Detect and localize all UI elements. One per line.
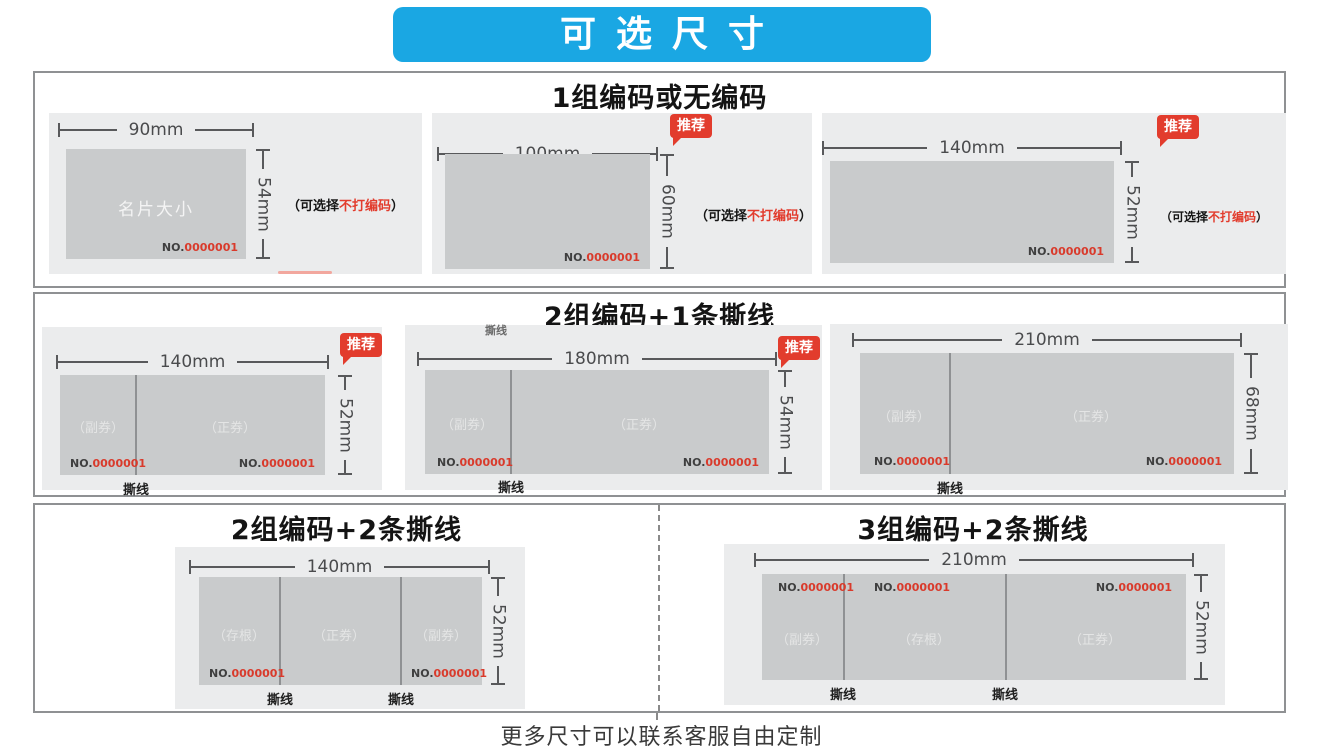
height-dimension-68mm: 68mm xyxy=(1243,353,1259,474)
serial-code: NO.0000001 xyxy=(162,241,238,254)
note-text: （可选择 xyxy=(287,199,339,214)
dim-tick xyxy=(1194,678,1208,680)
segment-label-main: （正券） xyxy=(1065,406,1117,425)
serial-code-prefix: NO. xyxy=(162,241,185,254)
tear-line-label: 撕线 xyxy=(123,479,149,498)
dim-tick xyxy=(1120,141,1122,155)
note-highlight: 不打编码 xyxy=(339,199,391,214)
serial-code-prefix: NO. xyxy=(437,456,460,469)
ticket-preview-210x52: NO.0000001 NO.0000001 NO.0000001 （副券） （存… xyxy=(762,574,1186,680)
size-card-90x54: 90mm 名片大小 NO.0000001 54mm （可选择不打编码） xyxy=(49,113,422,274)
serial-code-number: 0000001 xyxy=(460,456,514,469)
section-two-and-three-codes: 2组编码+2条撕线 140mm （存根） （正券） （副券） NO.000000… xyxy=(33,503,1286,713)
segment-label-stub: （副券） xyxy=(72,417,124,436)
dim-line xyxy=(262,151,264,169)
height-dimension-label: 60mm xyxy=(659,176,676,247)
tear-line-label: 撕线 xyxy=(937,478,963,497)
recommended-badge: 推荐 xyxy=(670,114,712,138)
height-dimension-label: 52mm xyxy=(1193,592,1210,663)
width-dimension-label: 210mm xyxy=(929,552,1019,569)
serial-code-prefix: NO. xyxy=(1028,245,1051,258)
no-code-option-note: （可选择不打编码） xyxy=(695,205,812,224)
height-dimension-52mm: 52mm xyxy=(337,375,353,475)
size-options-infographic: 可选尺寸 1组编码或无编码 90mm 名片大小 NO.0000001 54mm … xyxy=(0,0,1323,748)
tear-line-label: 撕线 xyxy=(498,477,524,496)
serial-code-prefix: NO. xyxy=(874,581,897,594)
width-dimension-140mm: 140mm xyxy=(822,140,1122,156)
width-dimension-90mm: 90mm xyxy=(58,122,254,138)
dim-line xyxy=(1200,576,1202,592)
serial-code-number: 0000001 xyxy=(896,581,950,594)
dim-tick xyxy=(1125,261,1139,263)
dim-line xyxy=(384,566,488,568)
serial-code-prefix: NO. xyxy=(1146,455,1169,468)
serial-code-prefix: NO. xyxy=(778,581,801,594)
segment-label-counterfoil: （存根） xyxy=(213,625,265,644)
serial-code-number: 0000001 xyxy=(184,241,238,254)
dim-line xyxy=(60,129,117,131)
serial-code-number: 0000001 xyxy=(1118,581,1172,594)
size-card-210x68-2seg: 210mm （副券） （正券） NO.0000001 NO.0000001 68… xyxy=(830,324,1288,490)
serial-code-number: 0000001 xyxy=(1168,455,1222,468)
dim-line xyxy=(784,372,786,387)
dim-tick xyxy=(327,355,329,369)
recommended-badge-label: 推荐 xyxy=(785,340,813,356)
segment-label-stub: （副券） xyxy=(878,406,930,425)
dim-line xyxy=(497,579,499,596)
dim-line xyxy=(237,361,327,363)
serial-code-number: 0000001 xyxy=(232,667,286,680)
serial-code-number: 0000001 xyxy=(705,456,759,469)
dim-line xyxy=(1250,449,1252,472)
height-dimension-54mm: 54mm xyxy=(777,370,793,474)
note-text: ） xyxy=(799,209,812,224)
section-one-code-header: 1组编码或无编码 xyxy=(35,76,1284,115)
dim-line xyxy=(1200,662,1202,678)
width-dimension-label: 90mm xyxy=(117,122,196,139)
width-dimension-label: 140mm xyxy=(295,559,385,576)
dim-line xyxy=(1019,559,1192,561)
section-left-header: 2组编码+2条撕线 xyxy=(35,508,658,547)
dim-tick xyxy=(1244,472,1258,474)
serial-code-prefix: NO. xyxy=(1096,581,1119,594)
note-highlight: 不打编码 xyxy=(1208,210,1256,224)
note-highlight: 不打编码 xyxy=(747,209,799,224)
serial-code-number: 0000001 xyxy=(434,667,488,680)
ticket-preview-140x52: （副券） （正券） NO.0000001 NO.0000001 xyxy=(60,375,325,475)
dim-tick xyxy=(1240,333,1242,347)
serial-code: NO.0000001 xyxy=(411,667,487,680)
serial-code: NO.0000001 xyxy=(564,251,640,264)
serial-code-number: 0000001 xyxy=(1050,245,1104,258)
serial-code-prefix: NO. xyxy=(209,667,232,680)
custom-size-caption: 更多尺寸可以联系客服自由定制 xyxy=(0,719,1323,748)
dim-tick xyxy=(488,560,490,574)
serial-code-prefix: NO. xyxy=(411,667,434,680)
height-dimension-label: 54mm xyxy=(777,387,794,458)
dim-tick xyxy=(656,147,658,161)
section-one-code: 1组编码或无编码 90mm 名片大小 NO.0000001 54mm （可选择不… xyxy=(33,71,1286,288)
dim-line xyxy=(344,377,346,390)
serial-code-number: 0000001 xyxy=(93,457,147,470)
width-dimension-140mm: 140mm xyxy=(189,559,490,575)
note-text: （可选择 xyxy=(695,209,747,224)
serial-code-prefix: NO. xyxy=(683,456,706,469)
tear-line-label: 撕线 xyxy=(830,684,856,703)
dim-tick xyxy=(338,473,352,475)
segment-label-main: （正券） xyxy=(613,414,665,433)
segment-label-main: （正券） xyxy=(313,625,365,644)
height-dimension-60mm: 60mm xyxy=(659,154,675,269)
serial-code: NO.0000001 xyxy=(1096,581,1172,594)
dim-line xyxy=(58,361,148,363)
dim-line xyxy=(642,358,775,360)
size-card-210x52-3seg: 210mm NO.0000001 NO.0000001 NO.0000001 （… xyxy=(724,544,1225,705)
serial-code: NO.0000001 xyxy=(437,456,513,469)
note-text: ） xyxy=(1256,210,1268,224)
dim-tick xyxy=(491,683,505,685)
serial-code-prefix: NO. xyxy=(70,457,93,470)
ticket-preview-180x54: （副券） （正券） NO.0000001 NO.0000001 xyxy=(425,370,769,474)
segment-label-stub: （副券） xyxy=(776,629,828,648)
no-code-option-note: （可选择不打编码） xyxy=(287,195,404,214)
serial-code: NO.0000001 xyxy=(778,581,854,594)
tear-line-label: 撕线 xyxy=(388,689,414,708)
recommended-badge: 推荐 xyxy=(1157,115,1199,139)
recommended-badge-label: 推荐 xyxy=(347,337,375,353)
serial-code: NO.0000001 xyxy=(1146,455,1222,468)
dim-line xyxy=(1131,163,1133,177)
dim-tick xyxy=(775,352,777,366)
recommended-badge: 推荐 xyxy=(778,336,820,360)
title-banner: 可选尺寸 xyxy=(393,7,931,62)
segment-label-stub: （副券） xyxy=(441,414,493,433)
serial-code-number: 0000001 xyxy=(897,455,951,468)
dim-tick xyxy=(1192,553,1194,567)
height-dimension-52mm: 52mm xyxy=(1124,161,1140,263)
tear-line-label: 撕线 xyxy=(992,684,1018,703)
page-title: 可选尺寸 xyxy=(560,17,784,53)
dim-line xyxy=(344,460,346,473)
recommended-badge-label: 推荐 xyxy=(677,118,705,134)
dim-line xyxy=(1017,147,1120,149)
dim-tick xyxy=(256,257,270,259)
serial-code-number: 0000001 xyxy=(586,251,640,264)
dim-line xyxy=(1131,247,1133,261)
dim-tick xyxy=(660,267,674,269)
serial-code-prefix: NO. xyxy=(564,251,587,264)
size-card-140x52-3seg: 140mm （存根） （正券） （副券） NO.0000001 NO.00000… xyxy=(175,547,525,709)
ticket-preview-100x60: NO.0000001 xyxy=(445,154,650,269)
width-dimension-label: 140mm xyxy=(148,354,238,371)
section-two-codes-one-tear: 2组编码+1条撕线 推荐 140mm （副券） （正券） NO.0000001 … xyxy=(33,292,1286,497)
serial-code-prefix: NO. xyxy=(239,457,262,470)
serial-code: NO.0000001 xyxy=(683,456,759,469)
dim-tick xyxy=(252,123,254,137)
dim-tick xyxy=(778,472,792,474)
serial-code: NO.0000001 xyxy=(874,581,950,594)
width-dimension-140mm: 140mm xyxy=(56,354,329,370)
no-code-option-note: （可选择不打编码） xyxy=(1160,208,1268,225)
width-dimension-210mm: 210mm xyxy=(754,552,1194,568)
ticket-preview-140x52: （存根） （正券） （副券） NO.0000001 NO.0000001 xyxy=(199,577,482,685)
ticket-preview-210x68: （副券） （正券） NO.0000001 NO.0000001 xyxy=(860,353,1234,474)
segment-label-main: （正券） xyxy=(1069,629,1121,648)
dim-line xyxy=(191,566,295,568)
size-card-180x54-2seg: 撕线 推荐 180mm （副券） （正券） NO.0000001 NO.0000… xyxy=(405,325,822,490)
height-dimension-label: 68mm xyxy=(1243,378,1260,449)
segment-label-stub: （副券） xyxy=(415,625,467,644)
section-right-header: 3组编码+2条撕线 xyxy=(658,508,1288,547)
height-dimension-label: 52mm xyxy=(490,596,507,667)
dim-line xyxy=(666,156,668,176)
serial-code-number: 0000001 xyxy=(801,581,855,594)
dim-line xyxy=(854,339,1002,341)
recommended-badge: 推荐 xyxy=(340,333,382,357)
note-text: （可选择 xyxy=(1160,210,1208,224)
dim-line xyxy=(1250,355,1252,378)
serial-code: NO.0000001 xyxy=(874,455,950,468)
width-dimension-210mm: 210mm xyxy=(852,332,1242,348)
tear-line xyxy=(400,577,402,685)
size-card-140x52: 推荐 140mm NO.0000001 52mm （可选择不打编码） xyxy=(822,113,1286,274)
width-dimension-label: 140mm xyxy=(927,140,1017,157)
recommended-badge-label: 推荐 xyxy=(1164,119,1192,135)
serial-code-number: 0000001 xyxy=(261,457,315,470)
dim-line xyxy=(419,358,552,360)
note-text: ） xyxy=(391,199,404,214)
tear-line xyxy=(1005,574,1007,680)
width-dimension-label: 180mm xyxy=(552,351,642,368)
size-card-100x60: 推荐 100mm NO.0000001 60mm （可选择不打编码） xyxy=(432,113,812,274)
serial-code: NO.0000001 xyxy=(239,457,315,470)
width-dimension-180mm: 180mm xyxy=(417,351,777,367)
ticket-preview-140x52: NO.0000001 xyxy=(830,161,1114,263)
serial-code: NO.0000001 xyxy=(1028,245,1104,258)
height-dimension-54mm: 54mm xyxy=(255,149,271,259)
height-dimension-label: 54mm xyxy=(255,169,272,240)
serial-code: NO.0000001 xyxy=(209,667,285,680)
height-dimension-52mm: 52mm xyxy=(1193,574,1209,680)
dim-line xyxy=(497,666,499,683)
ticket-center-label: 名片大小 xyxy=(66,195,246,220)
tear-line-label: 撕线 xyxy=(267,689,293,708)
dim-line xyxy=(824,147,927,149)
serial-code-prefix: NO. xyxy=(874,455,897,468)
segment-label-counterfoil: （存根） xyxy=(898,629,950,648)
dim-line xyxy=(756,559,929,561)
width-dimension-label: 210mm xyxy=(1002,332,1092,349)
ticket-preview-90x54: 名片大小 NO.0000001 xyxy=(66,149,246,259)
red-artifact-sliver xyxy=(278,271,332,274)
dim-line xyxy=(195,129,252,131)
dim-line xyxy=(1092,339,1240,341)
size-card-140x52-2seg: 推荐 140mm （副券） （正券） NO.0000001 NO.0000001… xyxy=(42,327,382,490)
serial-code: NO.0000001 xyxy=(70,457,146,470)
segment-label-main: （正券） xyxy=(204,417,256,436)
dim-line xyxy=(666,247,668,267)
dim-line xyxy=(784,457,786,472)
clipped-tear-label-artifact: 撕线 xyxy=(485,322,507,338)
height-dimension-52mm: 52mm xyxy=(490,577,506,685)
height-dimension-label: 52mm xyxy=(337,390,354,461)
height-dimension-label: 52mm xyxy=(1124,177,1141,248)
dim-line xyxy=(262,239,264,257)
